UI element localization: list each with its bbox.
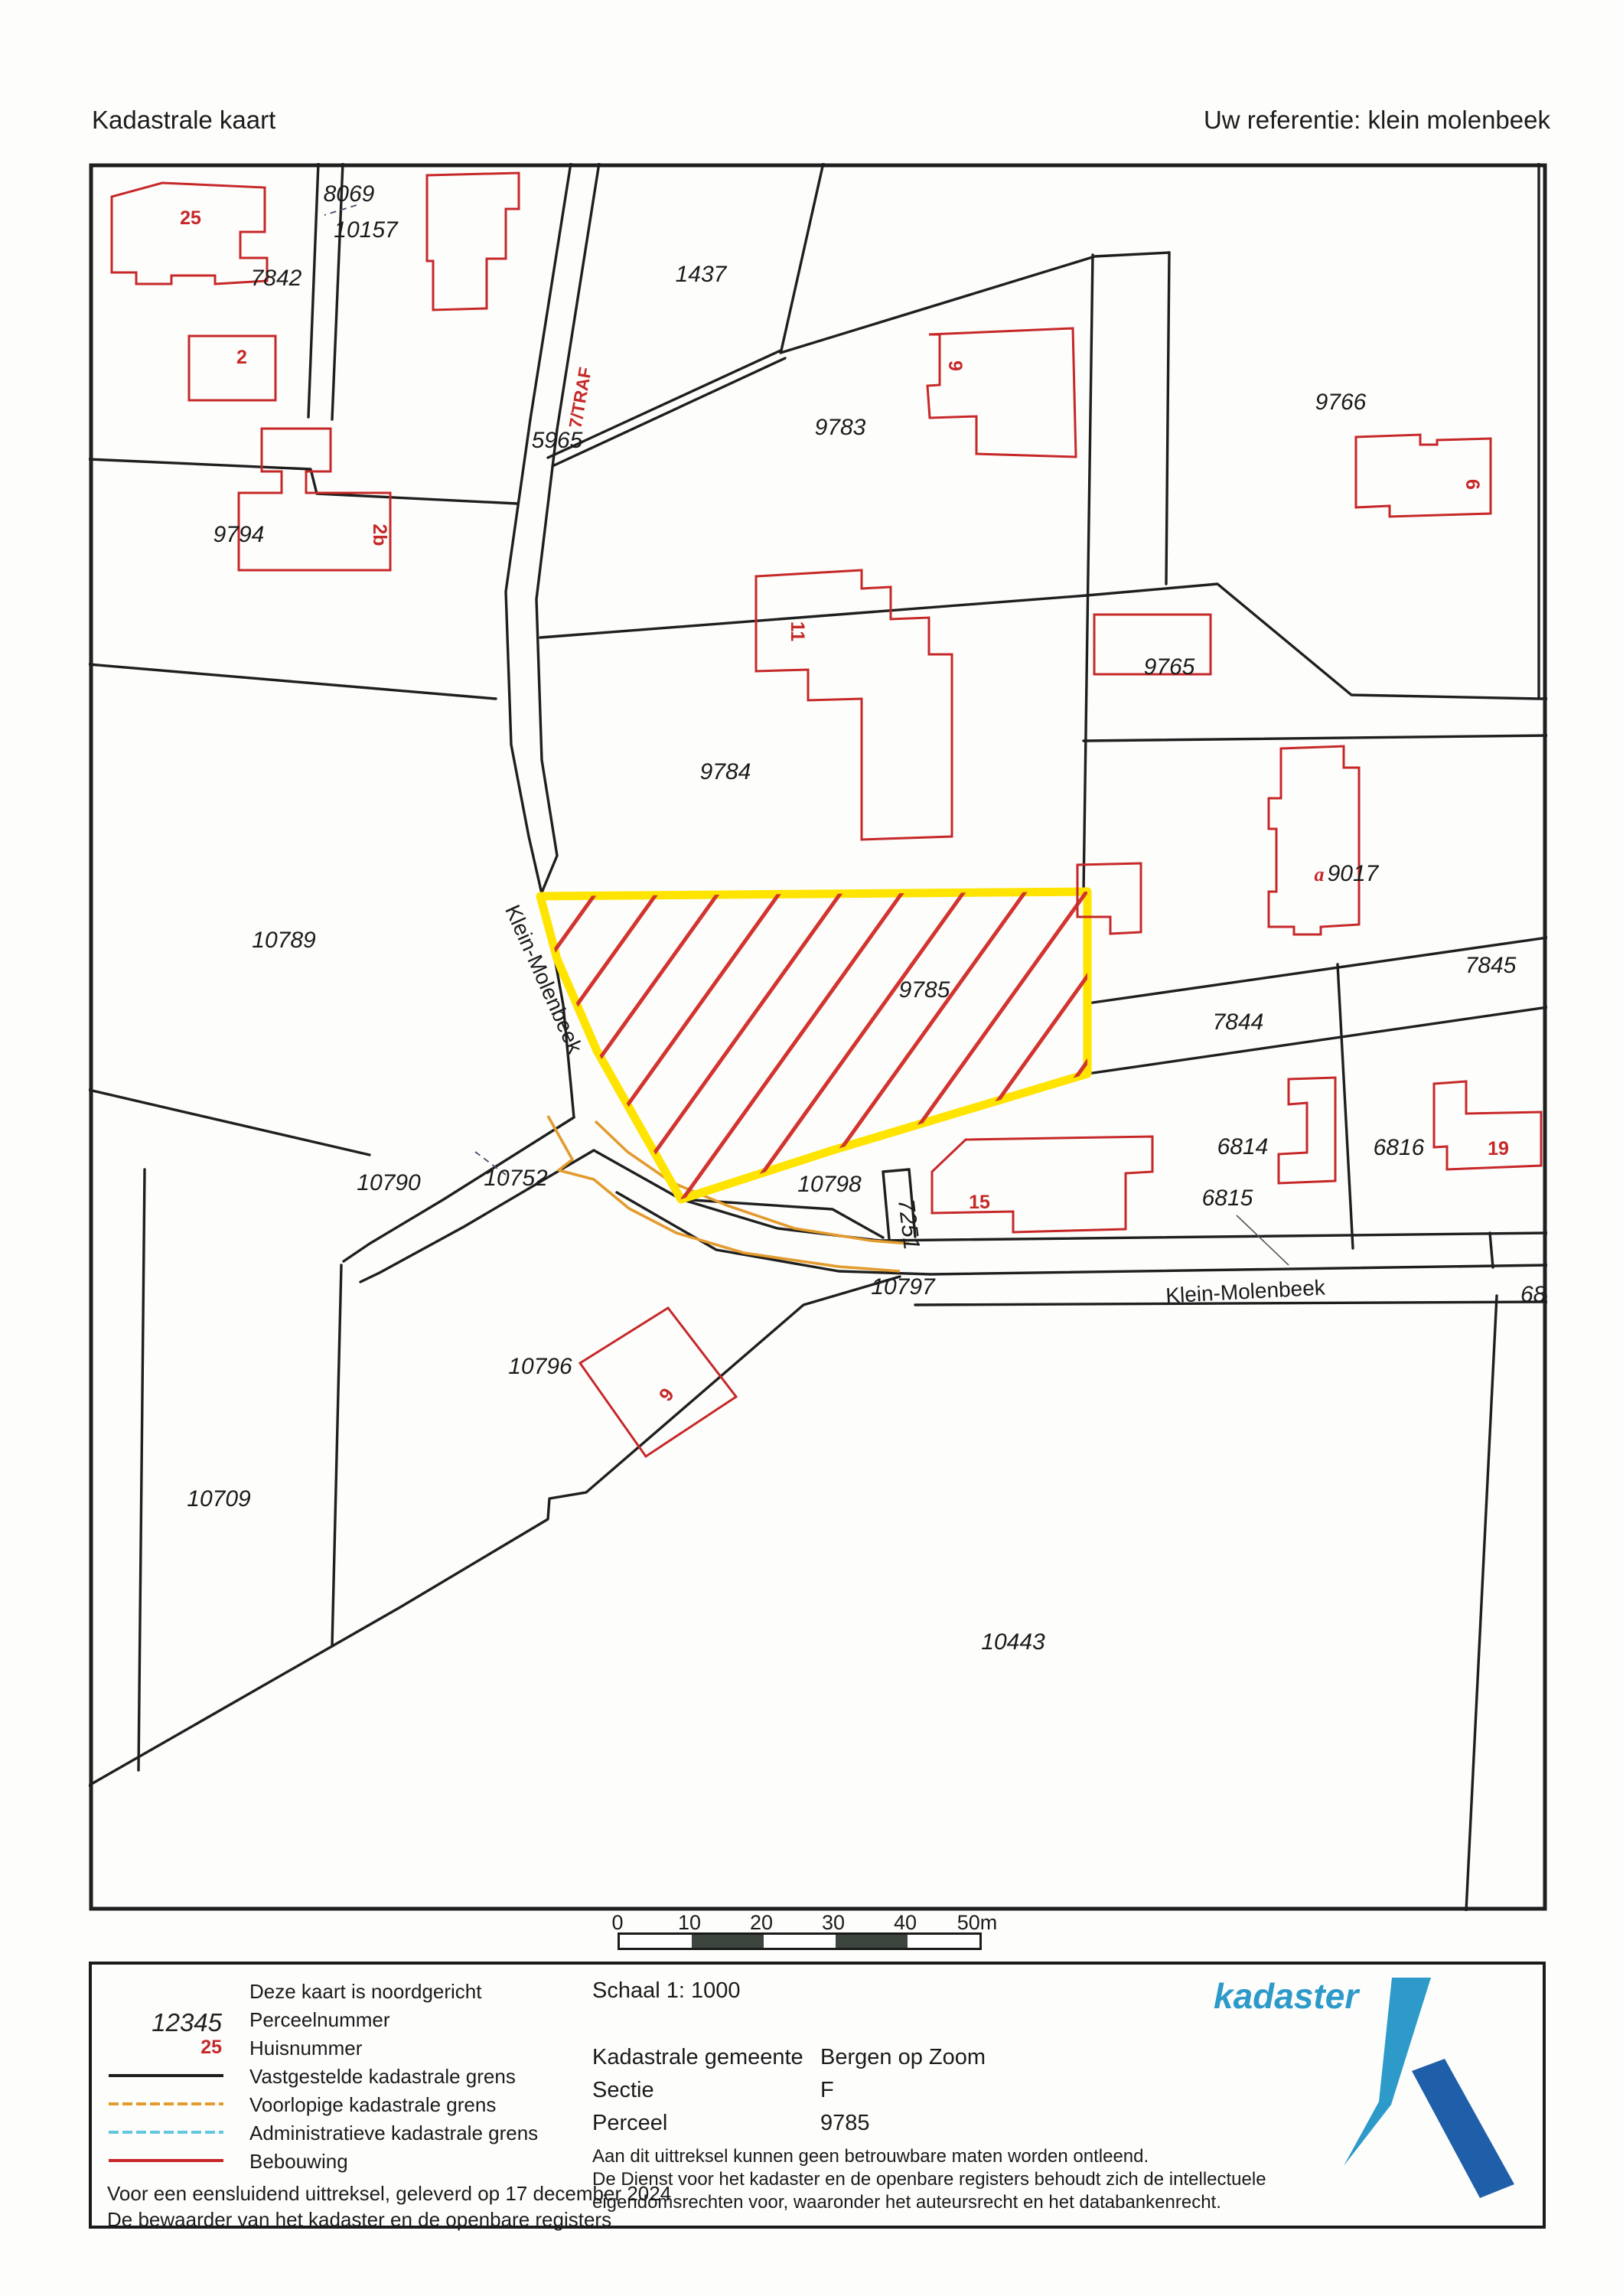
legend-row-bebouwing: Bebouwing xyxy=(92,2150,582,2173)
scale-segment xyxy=(620,1935,692,1948)
map-labels: 7842806910157143759659783976697949784976… xyxy=(180,181,1547,1655)
info-rows: Kadastrale gemeenteBergen op ZoomSectieF… xyxy=(592,2041,1128,2140)
scale-text: Schaal 1: 1000 xyxy=(592,1978,740,2004)
parcel-number-label: 680 xyxy=(1520,1282,1547,1307)
highlight-outline xyxy=(540,892,1087,1199)
legend-row-north: Deze kaart is noordgericht xyxy=(92,1980,582,2003)
legend-line-sample-administratief xyxy=(109,2131,223,2134)
parcel-number-label: 10709 xyxy=(187,1486,251,1512)
info-row: Kadastrale gemeenteBergen op Zoom xyxy=(592,2041,1128,2074)
parcel-number-label: 7845 xyxy=(1465,953,1517,978)
parcel-number-label: 6815 xyxy=(1202,1186,1253,1211)
parcel-number-label: 9765 xyxy=(1144,654,1195,680)
special-label: a xyxy=(1315,863,1325,885)
legend-row-administratief: Administratieve kadastrale grens xyxy=(92,2122,582,2144)
scale-segment xyxy=(908,1935,979,1948)
house-number-label: 6 xyxy=(654,1384,678,1405)
legend-label: Bebouwing xyxy=(249,2150,348,2174)
legend-footer: Voor een eensluidend uittreksel, gelever… xyxy=(107,2180,671,2232)
disclaimer-line: eigendomsrechten voor, waaronder het aut… xyxy=(592,2191,1266,2214)
scale-tick-label: 10 xyxy=(678,1911,701,1935)
legend-symbol: 12345 xyxy=(92,2008,222,2037)
info-row: SectieF xyxy=(592,2074,1128,2107)
scale-tick-label: 50m xyxy=(957,1911,998,1935)
legend-label: Voorlopige kadastrale grens xyxy=(249,2093,496,2117)
legend-label: Administratieve kadastrale grens xyxy=(249,2122,538,2145)
parcel-number-label: 1437 xyxy=(676,262,728,287)
parcel-number-label: 9794 xyxy=(213,522,265,547)
scale-bar: 01020304050m xyxy=(618,1911,1046,1958)
legend-line-sample-bebouwing xyxy=(109,2159,223,2162)
parcel-number-label: 9017 xyxy=(1328,861,1380,886)
scale-segment xyxy=(692,1935,764,1948)
legend-row-house: 25Huisnummer xyxy=(92,2037,582,2060)
parcel-number-label: 10796 xyxy=(508,1354,572,1379)
cadastral-map: 7842806910157143759659783976697949784976… xyxy=(89,163,1547,1911)
parcel-number-label: 7842 xyxy=(251,266,302,291)
parcel-number-label: 9766 xyxy=(1315,390,1367,415)
parcel-number-label: 10798 xyxy=(797,1172,862,1197)
scale-segment xyxy=(836,1935,908,1948)
parcel-number-label: 6816 xyxy=(1374,1135,1425,1160)
hatch-line xyxy=(1053,821,1382,1280)
info-value: F xyxy=(820,2074,834,2107)
kadaster-logo: kadaster xyxy=(1204,1971,1556,2224)
page-title: Kadastrale kaart xyxy=(92,106,275,135)
info-row: Perceel9785 xyxy=(592,2107,1128,2140)
legend-row-vastgesteld: Vastgestelde kadastrale grens xyxy=(92,2065,582,2088)
map-canvas: 7842806910157143759659783976697949784976… xyxy=(89,163,1547,1911)
house-number-label: 19 xyxy=(1488,1138,1509,1159)
kadaster-wordmark: kadaster xyxy=(1214,1976,1360,2016)
house-number-label: 25 xyxy=(180,207,201,229)
scale-segments xyxy=(618,1932,982,1950)
info-value: 9785 xyxy=(820,2107,870,2140)
parcel-number-label: 7844 xyxy=(1213,1009,1264,1035)
scale-tick-label: 20 xyxy=(750,1911,773,1935)
info-value: Bergen op Zoom xyxy=(820,2041,986,2074)
house-number-label: 9 xyxy=(944,360,966,371)
info-label: Kadastrale gemeente xyxy=(592,2041,820,2074)
parcel-number-label: 10752 xyxy=(484,1166,548,1191)
legend-symbol: 25 xyxy=(92,2037,222,2059)
legend-label: Huisnummer xyxy=(249,2037,362,2060)
parcel-number-label: 8069 xyxy=(324,181,375,207)
info-label: Sectie xyxy=(592,2074,820,2107)
parcel-number-label: 9783 xyxy=(815,415,866,440)
legend-line-sample-vastgesteld xyxy=(109,2074,223,2077)
info-column: Schaal 1: 1000 Kadastrale gemeenteBergen… xyxy=(592,1978,740,2004)
legend-label: Perceelnummer xyxy=(249,2008,390,2032)
legend-row-parcel: 12345Perceelnummer xyxy=(92,2008,582,2031)
parcel-number-label: 10157 xyxy=(334,217,399,243)
scale-tick-label: 30 xyxy=(822,1911,845,1935)
house-number-label: 2 xyxy=(236,347,247,368)
legend-row-voorlopig: Voorlopige kadastrale grens xyxy=(92,2093,582,2116)
parcel-number-label: 10443 xyxy=(981,1629,1045,1655)
parcel-number-label: 5965 xyxy=(532,428,583,453)
hatch-line xyxy=(1114,821,1443,1280)
house-number-label: 15 xyxy=(969,1192,990,1213)
legend-line-sample-voorlopig xyxy=(109,2102,223,2105)
parcel-number-label: 10797 xyxy=(871,1274,936,1300)
house-number-label: 6 xyxy=(1462,479,1483,490)
house-number-label: 2b xyxy=(369,523,390,546)
parcel-number-label: 9784 xyxy=(700,759,751,784)
disclaimer: Aan dit uittreksel kunnen geen betrouwba… xyxy=(592,2145,1266,2214)
reference-text: Uw referentie: klein molenbeek xyxy=(1204,106,1550,135)
disclaimer-line: Aan dit uittreksel kunnen geen betrouwba… xyxy=(592,2145,1266,2168)
legend-footer-line: Voor een eensluidend uittreksel, gelever… xyxy=(107,2180,671,2206)
house-number-label: 11 xyxy=(787,621,808,642)
parcel-number-label: 10789 xyxy=(252,928,316,953)
disclaimer-line: De Dienst voor het kadaster en de openba… xyxy=(592,2168,1266,2191)
scale-segment xyxy=(764,1935,836,1948)
info-label: Perceel xyxy=(592,2107,820,2140)
parcel-number-label: 6814 xyxy=(1217,1134,1269,1159)
legend-footer-line: De bewaarder van het kadaster en de open… xyxy=(107,2206,671,2232)
scale-tick-label: 0 xyxy=(611,1911,623,1935)
parcel-number-label: 10790 xyxy=(357,1170,421,1195)
special-label: 7/TRAF xyxy=(565,366,595,430)
cadastral-extract-page: Kadastrale kaart Uw referentie: klein mo… xyxy=(0,0,1623,2296)
parcel-number-label: 9785 xyxy=(899,977,950,1003)
hatch-line xyxy=(1175,821,1504,1280)
legend-box: Deze kaart is noordgericht12345Perceelnu… xyxy=(89,1962,1546,2229)
north-note: Deze kaart is noordgericht xyxy=(249,1980,481,2004)
legend-label: Vastgestelde kadastrale grens xyxy=(249,2065,516,2089)
logo-mark-dark xyxy=(1412,2059,1514,2198)
scale-tick-label: 40 xyxy=(894,1911,917,1935)
